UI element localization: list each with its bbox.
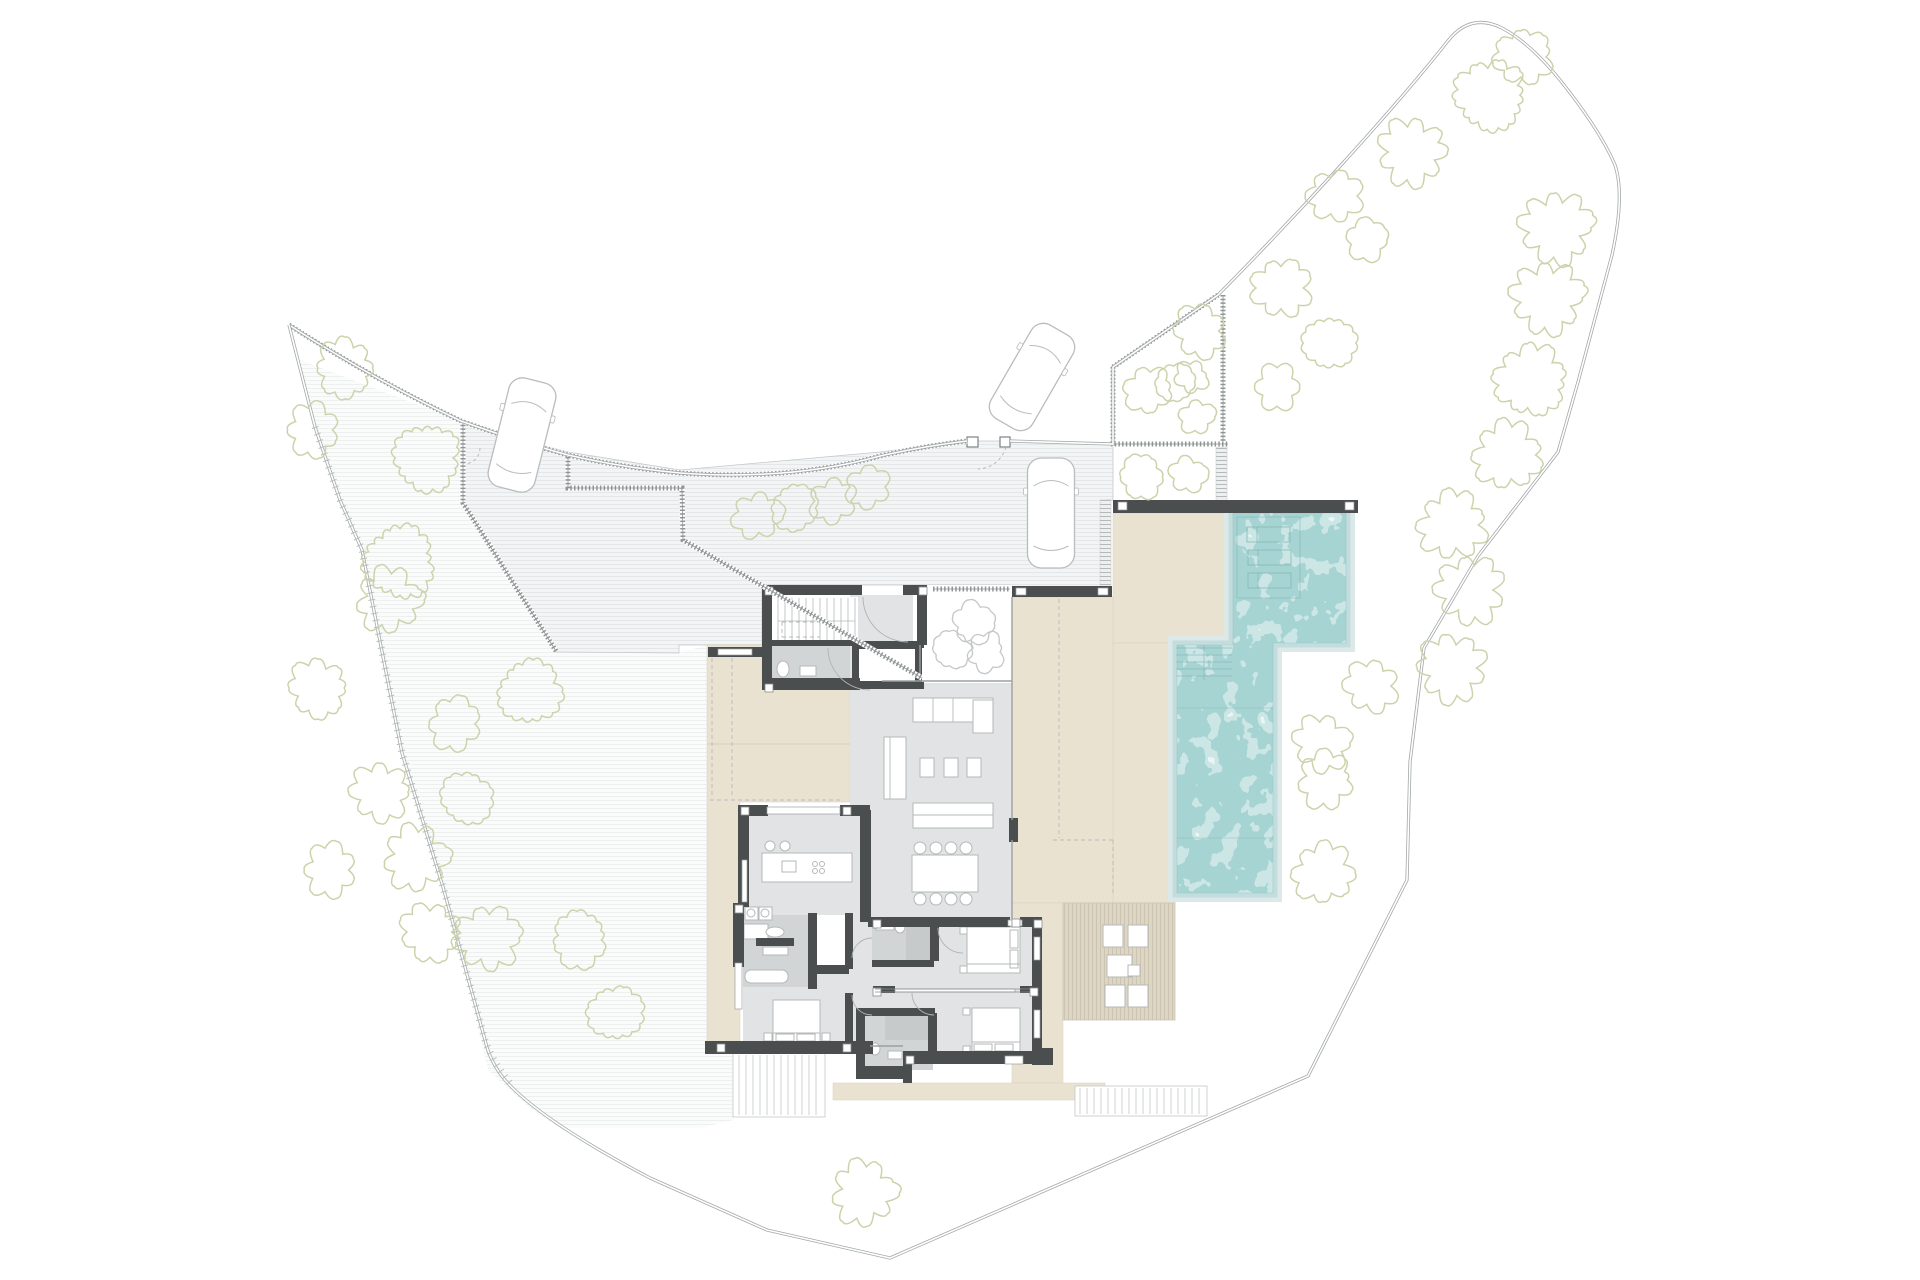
- tree: [348, 763, 409, 824]
- wall-post: [1030, 988, 1038, 996]
- furniture-round: [930, 842, 942, 854]
- window: [742, 860, 747, 902]
- furniture-round: [960, 842, 972, 854]
- tree: [1250, 259, 1312, 317]
- furniture-round: [945, 842, 957, 854]
- window: [1016, 588, 1026, 595]
- architectural-site-plan: [0, 0, 1920, 1280]
- wall-segment: [852, 641, 859, 689]
- furniture-round: [945, 893, 957, 905]
- furniture: [1010, 950, 1018, 968]
- wall-segment: [856, 1008, 865, 1070]
- stone-terrace: [1012, 597, 1113, 903]
- wall-segment: [768, 640, 852, 646]
- window: [1034, 1010, 1040, 1038]
- tree: [1415, 488, 1488, 558]
- car-body: [984, 318, 1080, 436]
- tree: [1301, 318, 1358, 368]
- car: [1024, 458, 1079, 568]
- wall-post: [1345, 502, 1354, 510]
- furniture-round: [820, 869, 825, 874]
- wall-post: [1034, 920, 1042, 928]
- sanitary-fixture: [766, 927, 784, 937]
- furniture: [762, 853, 852, 882]
- furniture: [744, 924, 768, 939]
- furniture: [963, 1008, 970, 1015]
- gate-post: [1000, 437, 1010, 447]
- window: [1034, 937, 1040, 960]
- furniture: [967, 758, 981, 777]
- window: [1005, 1056, 1023, 1064]
- tree: [288, 658, 346, 720]
- furniture-round: [960, 893, 972, 905]
- room-floor: [885, 1015, 929, 1040]
- wood-deck-layer: [1063, 903, 1175, 1020]
- wall-post: [919, 587, 927, 595]
- furniture: [764, 1033, 772, 1041]
- furniture-round: [761, 909, 769, 917]
- wall-post: [717, 1044, 725, 1052]
- furniture: [1010, 930, 1018, 948]
- stone-terrace: [1113, 513, 1233, 643]
- wall-segment: [915, 641, 922, 689]
- tree: [1491, 342, 1566, 416]
- tree: [1174, 361, 1209, 393]
- wall-segment: [808, 913, 817, 989]
- wall-segment: [845, 913, 853, 969]
- furniture: [763, 947, 788, 955]
- wall-segment: [1113, 500, 1358, 513]
- sanitary-fixture: [777, 661, 789, 677]
- tree: [1517, 193, 1597, 268]
- furniture: [782, 861, 796, 872]
- window: [718, 649, 752, 655]
- wall-post: [741, 807, 749, 815]
- gate-post: [967, 437, 978, 447]
- tree: [304, 840, 354, 899]
- furniture-round: [914, 842, 926, 854]
- car: [981, 316, 1083, 438]
- site-plan-page: [0, 0, 1920, 1280]
- tree: [832, 1158, 901, 1228]
- garden-steps-strip: [1216, 447, 1227, 502]
- furniture-round: [813, 862, 818, 867]
- furniture-round: [820, 862, 825, 867]
- furniture: [995, 1044, 1013, 1051]
- window: [895, 989, 1015, 992]
- wall-segment: [928, 1013, 937, 1055]
- deck-furniture: [1128, 925, 1148, 947]
- wall-segment: [810, 965, 849, 974]
- tree: [1346, 217, 1388, 263]
- furniture-round: [747, 909, 755, 917]
- wall-post: [765, 684, 773, 692]
- wall-post: [843, 1044, 851, 1052]
- tree: [1290, 840, 1356, 903]
- tree: [1378, 118, 1449, 189]
- window: [767, 807, 840, 814]
- deck-furniture: [1105, 985, 1125, 1007]
- furniture: [822, 1033, 830, 1041]
- wall-segment: [860, 810, 871, 922]
- wall-segment: [762, 585, 772, 690]
- room-floor: [906, 923, 932, 965]
- tree: [1123, 367, 1172, 413]
- wall-post: [1118, 502, 1127, 510]
- wall-segment: [1012, 586, 1112, 597]
- furniture-round: [780, 841, 790, 851]
- wall-post: [735, 905, 743, 913]
- tree: [1173, 304, 1226, 360]
- furniture: [884, 737, 906, 799]
- furniture: [944, 758, 958, 777]
- room-floor: [817, 915, 847, 967]
- stone-terrace: [833, 1083, 1105, 1100]
- tree: [1178, 400, 1216, 434]
- furniture: [888, 1051, 902, 1059]
- tree: [1255, 363, 1300, 410]
- wall-segment: [1032, 1048, 1053, 1065]
- window: [1098, 588, 1108, 595]
- window: [735, 963, 742, 1009]
- furniture: [973, 700, 993, 733]
- garden-steps-strip: [1100, 500, 1111, 588]
- tree: [1342, 660, 1399, 714]
- exterior-stair-west-outline: [733, 1053, 825, 1117]
- furniture-round: [930, 893, 942, 905]
- exterior-stair-east-outline: [1075, 1086, 1207, 1116]
- wall-post: [873, 920, 881, 928]
- bathtub: [745, 970, 788, 983]
- deck-furniture: [1128, 965, 1140, 976]
- furniture-round: [765, 841, 775, 851]
- furniture-round: [813, 869, 818, 874]
- furniture: [920, 758, 934, 777]
- car-mirror: [1075, 488, 1079, 495]
- tree: [1120, 454, 1163, 500]
- car-body: [1028, 458, 1075, 568]
- deck-furniture: [1128, 985, 1148, 1007]
- furniture: [800, 666, 816, 676]
- wall-post: [906, 1056, 914, 1064]
- tree: [1452, 60, 1523, 134]
- furniture: [912, 855, 978, 892]
- furniture: [913, 803, 993, 828]
- wall-segment: [845, 993, 853, 1043]
- tree: [1471, 418, 1543, 488]
- furniture: [776, 1034, 794, 1041]
- wall-post: [1012, 919, 1020, 927]
- wall-segment: [762, 678, 860, 690]
- wall-post: [843, 807, 851, 815]
- wall-segment: [852, 682, 924, 689]
- furniture: [960, 966, 967, 973]
- tree: [1168, 455, 1209, 492]
- room-floor: [858, 649, 916, 681]
- furniture: [797, 1034, 815, 1041]
- tree: [1298, 748, 1353, 809]
- wall-segment: [856, 1066, 905, 1079]
- wall-segment: [756, 938, 794, 946]
- tree: [1508, 263, 1588, 337]
- car-mirror: [1024, 488, 1028, 495]
- house-floor-layer: [743, 585, 1042, 1070]
- stone-terrace: [1113, 643, 1175, 903]
- deck-furniture: [1103, 925, 1123, 947]
- furniture-round: [914, 893, 926, 905]
- furniture: [960, 927, 967, 934]
- wall-segment: [1009, 818, 1018, 842]
- wall-segment: [930, 919, 939, 961]
- tree: [1292, 715, 1354, 774]
- wall-segment: [872, 960, 934, 967]
- furniture: [974, 1044, 992, 1051]
